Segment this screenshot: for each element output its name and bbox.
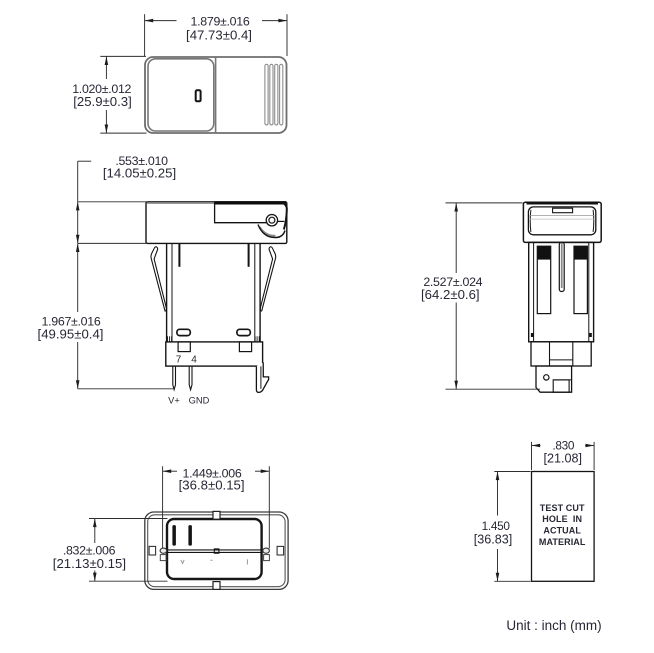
svg-text:[21.08]: [21.08] — [544, 451, 583, 465]
svg-text:MATERIAL: MATERIAL — [539, 537, 586, 547]
svg-text:[36.83]: [36.83] — [474, 533, 513, 547]
svg-text:[64.2±0.6]: [64.2±0.6] — [421, 287, 480, 302]
svg-text:4: 4 — [191, 355, 197, 366]
svg-text:1.450: 1.450 — [482, 519, 511, 533]
svg-text:[47.73±0.4]: [47.73±0.4] — [186, 27, 252, 42]
svg-text:.830: .830 — [552, 438, 574, 452]
svg-text:ACTUAL: ACTUAL — [543, 525, 581, 535]
svg-text:[36.8±0.15]: [36.8±0.15] — [179, 477, 245, 492]
svg-text:7: 7 — [176, 355, 182, 366]
svg-text:[14.05±0.25]: [14.05±0.25] — [103, 166, 176, 181]
svg-text:HOLE IN: HOLE IN — [542, 514, 582, 524]
svg-text:V+: V+ — [168, 396, 180, 406]
svg-text:[21.13±0.15]: [21.13±0.15] — [53, 556, 126, 571]
svg-text:Unit : inch (mm): Unit : inch (mm) — [506, 618, 601, 633]
svg-text:[49.95±0.4]: [49.95±0.4] — [38, 327, 104, 342]
svg-text:GND: GND — [189, 396, 210, 406]
svg-text:TEST CUT: TEST CUT — [540, 503, 585, 513]
svg-text:[25.9±0.3]: [25.9±0.3] — [73, 94, 132, 109]
